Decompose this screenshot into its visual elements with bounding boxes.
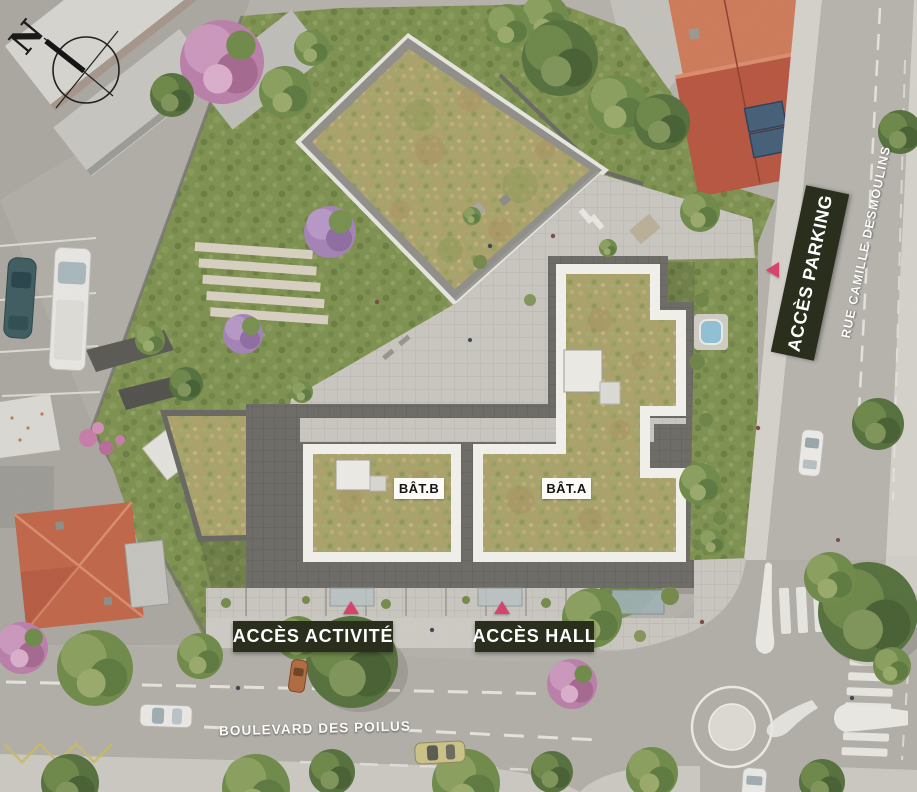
activite-entrance-marker-icon (343, 601, 359, 614)
access-activite-label: ACCÈS ACTIVITÉ (233, 626, 394, 647)
access-hall-banner: ACCÈS HALL (475, 621, 594, 652)
hall-entrance-marker-icon (494, 601, 510, 614)
site-plan-rendering (0, 0, 917, 792)
building-b-label-box: BÂT.B (394, 478, 444, 499)
site-plan: N ACCÈS PARKING RUE CAMILLE DESMOULINS B… (0, 0, 917, 792)
access-activite-banner: ACCÈS ACTIVITÉ (233, 621, 393, 652)
access-hall-label: ACCÈS HALL (473, 626, 597, 647)
building-a-label-box: BÂT.A (542, 478, 591, 499)
parking-entrance-marker-icon (766, 262, 779, 278)
